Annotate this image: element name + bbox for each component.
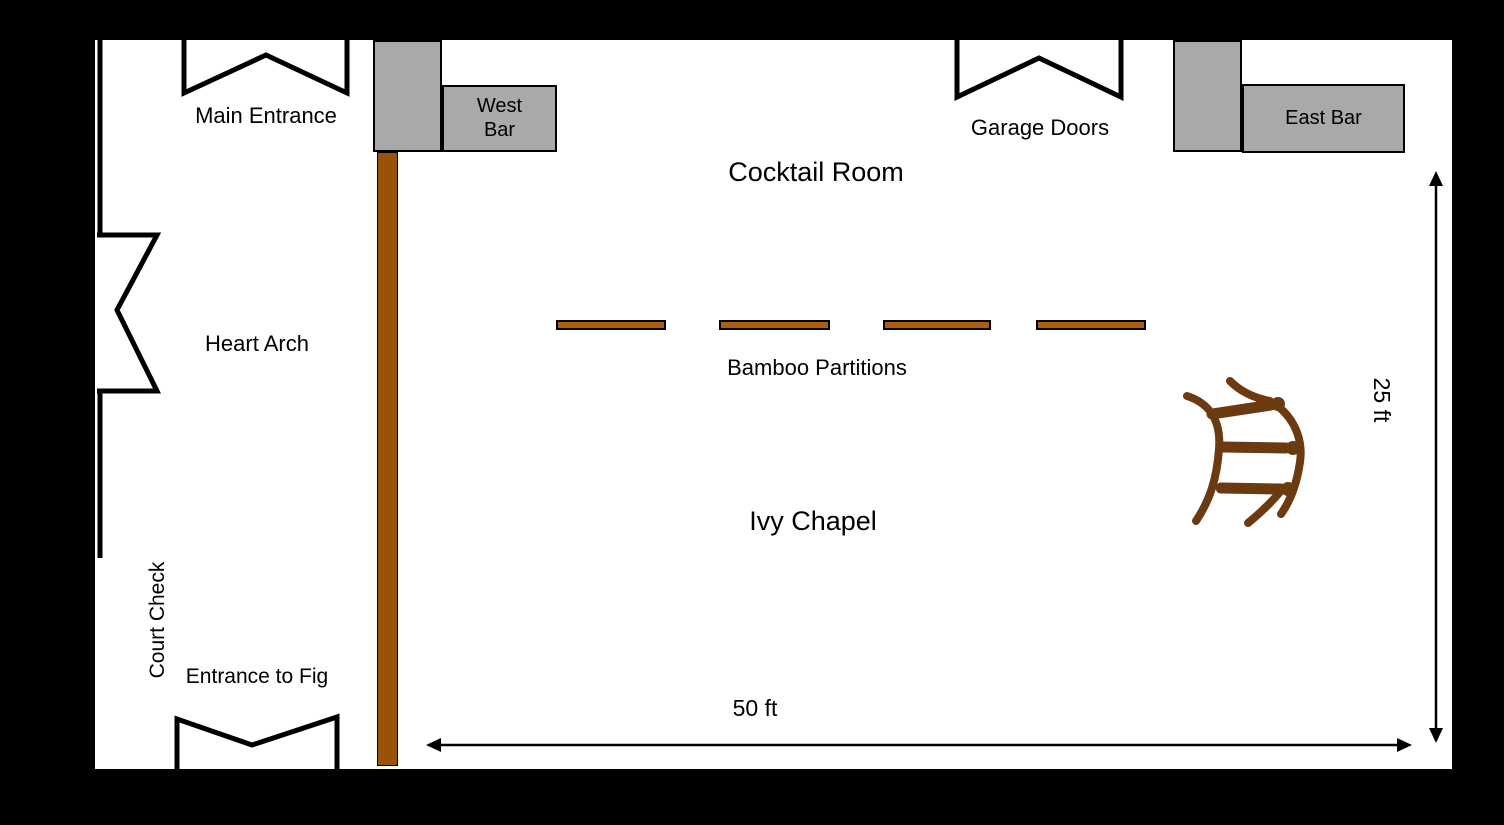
brown-wall xyxy=(377,152,398,766)
hand-drawn-arbor-icon xyxy=(1187,381,1301,523)
garage-doors-label: Garage Doors xyxy=(940,115,1140,141)
bamboo-partition-4 xyxy=(1036,320,1146,330)
cocktail-room-label: Cocktail Room xyxy=(666,157,966,188)
main-entrance-label: Main Entrance xyxy=(166,103,366,129)
bamboo-partition-2 xyxy=(719,320,830,330)
ivy-chapel-label: Ivy Chapel xyxy=(663,506,963,537)
west-bar: West Bar xyxy=(442,85,557,152)
width-dimension-label: 50 ft xyxy=(705,695,805,722)
heart-arch-door-icon xyxy=(97,235,157,391)
floor-plan-canvas: West Bar East Bar Main Entrance Garage D… xyxy=(0,0,1504,825)
bamboo-partition-1 xyxy=(556,320,666,330)
height-dimension-arrow xyxy=(1429,171,1443,743)
garage-doors-door-icon xyxy=(957,40,1121,97)
east-column xyxy=(1173,40,1242,152)
west-column xyxy=(373,40,442,152)
main-entrance-door-icon xyxy=(184,40,347,93)
east-bar: East Bar xyxy=(1242,84,1405,153)
west-bar-label: West Bar xyxy=(470,95,530,142)
bamboo-partition-3 xyxy=(883,320,991,330)
bamboo-partitions-label: Bamboo Partitions xyxy=(667,355,967,381)
height-dimension-label: 25 ft xyxy=(1373,350,1395,450)
width-dimension-arrow xyxy=(426,738,1412,752)
east-bar-label: East Bar xyxy=(1285,107,1362,131)
entrance-to-fig-label: Entrance to Fig xyxy=(157,665,357,689)
heart-arch-label: Heart Arch xyxy=(157,331,357,357)
fig-entrance-door-icon xyxy=(177,717,337,769)
